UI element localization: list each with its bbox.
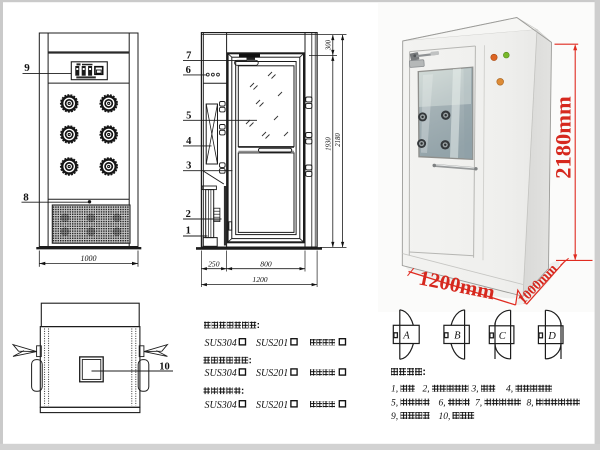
- svg-text:800: 800: [260, 259, 272, 268]
- svg-text:SUS201: SUS201: [256, 368, 288, 379]
- svg-text:SUS304: SUS304: [205, 368, 237, 379]
- svg-text:2180: 2180: [335, 133, 342, 147]
- svg-text:2: 2: [186, 209, 191, 220]
- svg-text:10: 10: [159, 362, 170, 373]
- svg-text:SUS304: SUS304: [205, 400, 237, 411]
- svg-text:D: D: [547, 331, 556, 342]
- svg-text:2,: 2,: [423, 385, 430, 395]
- svg-text:7: 7: [186, 50, 191, 61]
- svg-text:6: 6: [186, 65, 191, 76]
- svg-text:C: C: [499, 331, 507, 342]
- svg-text:300: 300: [325, 39, 332, 51]
- svg-text:SUS304: SUS304: [205, 338, 237, 349]
- svg-text:4,: 4,: [506, 385, 513, 395]
- svg-text:9,: 9,: [391, 412, 398, 422]
- svg-text:4: 4: [186, 136, 192, 147]
- svg-text:B: B: [454, 331, 461, 342]
- svg-text:10,: 10,: [439, 412, 451, 422]
- svg-text:SUS201: SUS201: [256, 338, 288, 349]
- svg-text:A: A: [402, 331, 410, 342]
- svg-text:250: 250: [208, 259, 220, 268]
- svg-text:1200: 1200: [252, 275, 267, 284]
- svg-text:2180mm: 2180mm: [551, 96, 576, 179]
- svg-text:3: 3: [186, 161, 191, 172]
- svg-text:5,: 5,: [391, 398, 398, 408]
- svg-text:6,: 6,: [439, 398, 446, 408]
- svg-text:7,: 7,: [475, 398, 482, 408]
- svg-text:5: 5: [186, 110, 191, 121]
- svg-text:1000: 1000: [81, 254, 97, 263]
- svg-text:8,: 8,: [527, 398, 534, 408]
- svg-text:1,: 1,: [391, 385, 398, 395]
- svg-text:3,: 3,: [471, 385, 479, 395]
- svg-text:SUS201: SUS201: [256, 400, 288, 411]
- svg-text:9: 9: [24, 62, 30, 74]
- svg-text:1930: 1930: [325, 137, 332, 151]
- svg-text:1: 1: [186, 225, 191, 236]
- svg-text:8: 8: [23, 191, 29, 203]
